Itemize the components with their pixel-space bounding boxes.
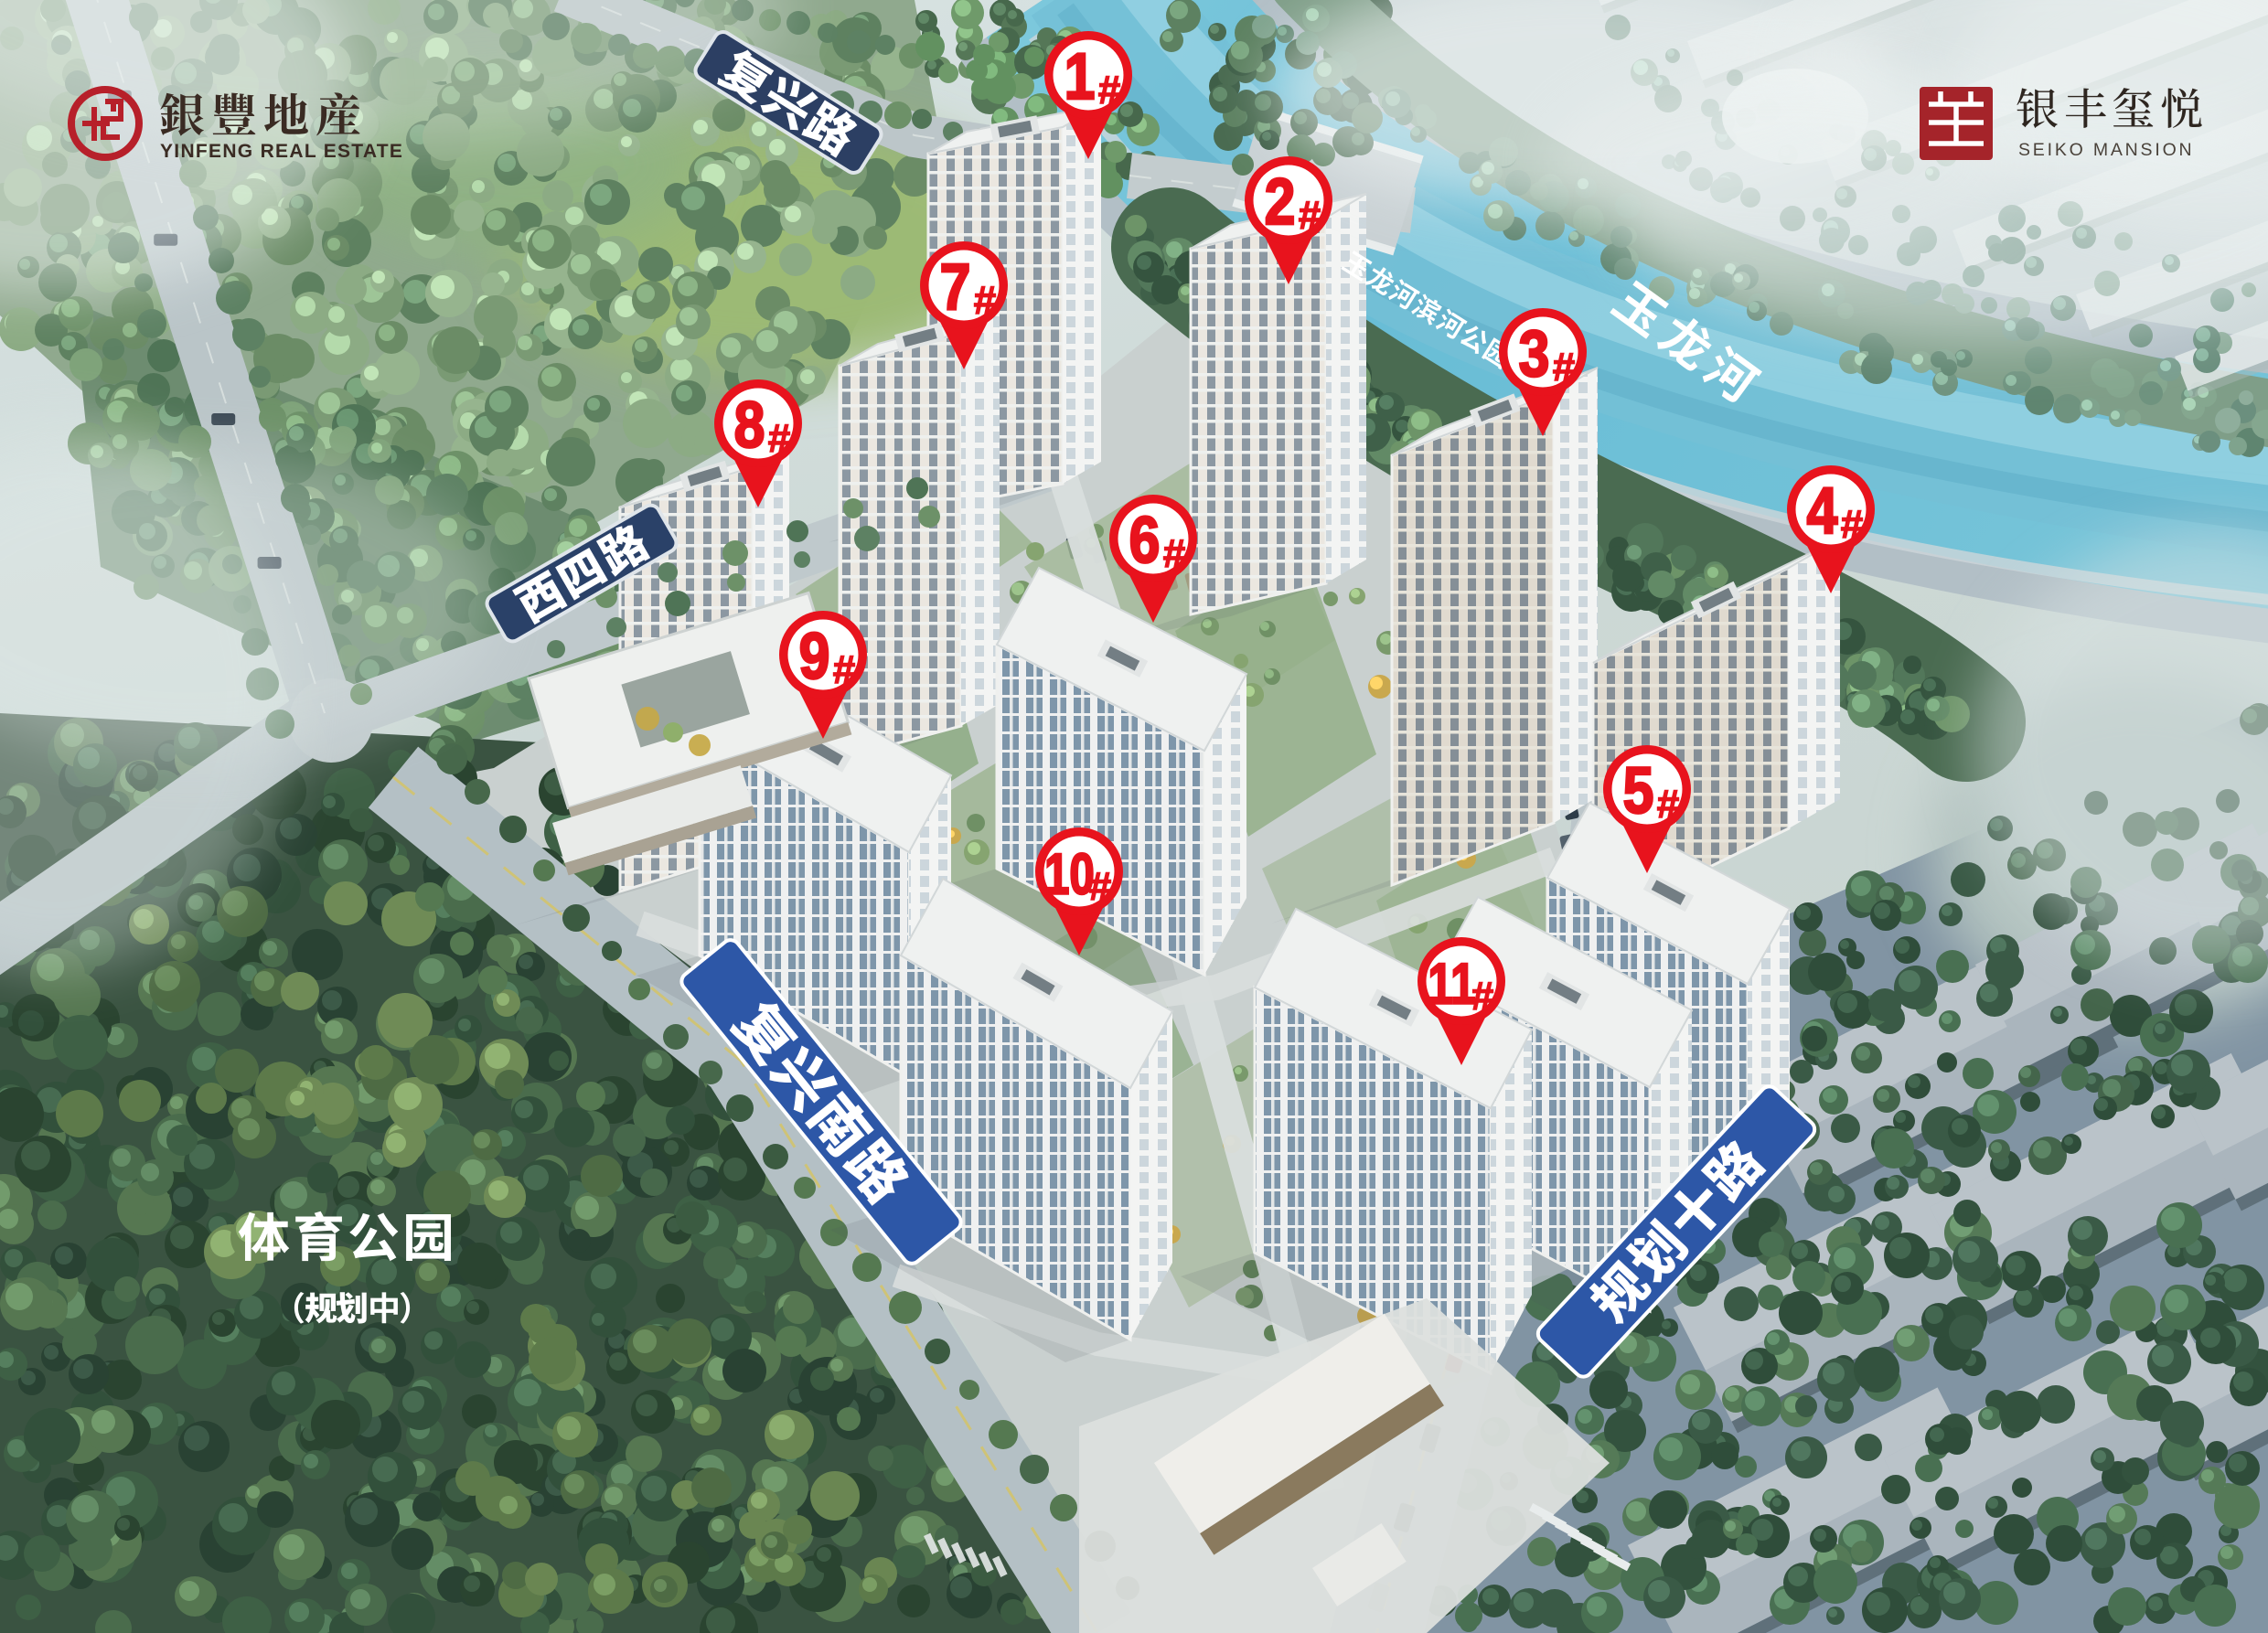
svg-text:#: # [1841,502,1863,547]
svg-text:YINFENG REAL ESTATE: YINFENG REAL ESTATE [160,141,403,162]
svg-text:7: 7 [940,251,971,324]
svg-text:#: # [1299,193,1321,238]
svg-text:1: 1 [1064,40,1096,113]
svg-text:9: 9 [799,620,830,693]
svg-text:10: 10 [1044,842,1095,906]
svg-text:3: 3 [1519,317,1550,390]
svg-text:4: 4 [1807,475,1838,548]
svg-text:#: # [1098,68,1120,112]
svg-text:6: 6 [1129,504,1161,577]
svg-text:8: 8 [734,389,765,462]
svg-text:#: # [1553,345,1575,390]
svg-text:#: # [1471,974,1493,1019]
svg-text:#: # [768,416,790,461]
svg-text:SEIKO MANSION: SEIKO MANSION [2018,140,2194,160]
svg-text:#: # [833,647,855,692]
svg-text:#: # [1657,782,1679,827]
svg-text:#: # [1089,864,1111,909]
svg-text:5: 5 [1623,754,1654,827]
svg-text:11: 11 [1428,952,1475,1016]
svg-text:2: 2 [1265,165,1296,239]
svg-text:#: # [1163,531,1185,576]
svg-text:#: # [974,278,996,323]
